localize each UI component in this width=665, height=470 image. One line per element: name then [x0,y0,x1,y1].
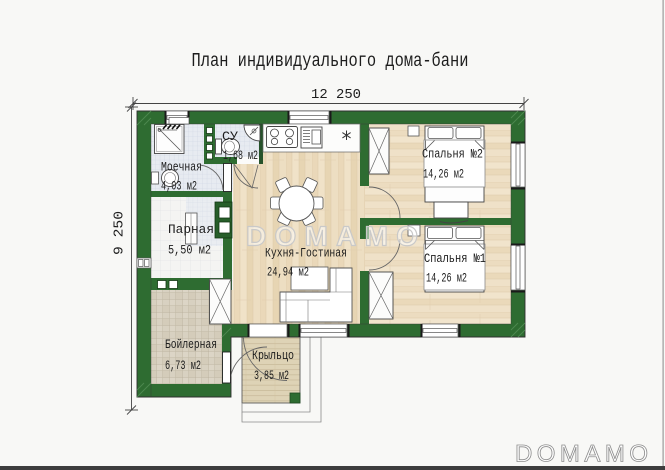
svg-text:Спальня №2: Спальня №2 [422,147,483,162]
svg-text:14,26 м2: 14,26 м2 [423,167,464,182]
svg-text:Спальня №1: Спальня №1 [424,251,486,266]
svg-text:24,94 м2: 24,94 м2 [267,265,309,280]
svg-text:3,85 м2: 3,85 м2 [254,368,289,383]
svg-text:4,03 м2: 4,03 м2 [161,179,197,194]
svg-text:9 250: 9 250 [112,211,128,255]
svg-text:СУ: СУ [222,129,238,144]
svg-text:1,68 м2: 1,68 м2 [223,148,258,163]
svg-text:5,50 м2: 5,50 м2 [168,243,211,258]
svg-text:План индивидуального дома-бани: План индивидуального дома-бани [192,50,469,72]
svg-text:Парная: Парная [168,222,214,237]
svg-text:Крыльцо: Крыльцо [252,348,294,363]
svg-text:12 250: 12 250 [311,87,361,103]
svg-text:Бойлерная: Бойлерная [165,337,217,352]
svg-text:Моечная: Моечная [161,160,202,175]
svg-text:6,73 м2: 6,73 м2 [165,358,201,373]
svg-text:14,26 м2: 14,26 м2 [426,271,467,286]
svg-text:Кухня-Гостиная: Кухня-Гостиная [265,246,347,261]
